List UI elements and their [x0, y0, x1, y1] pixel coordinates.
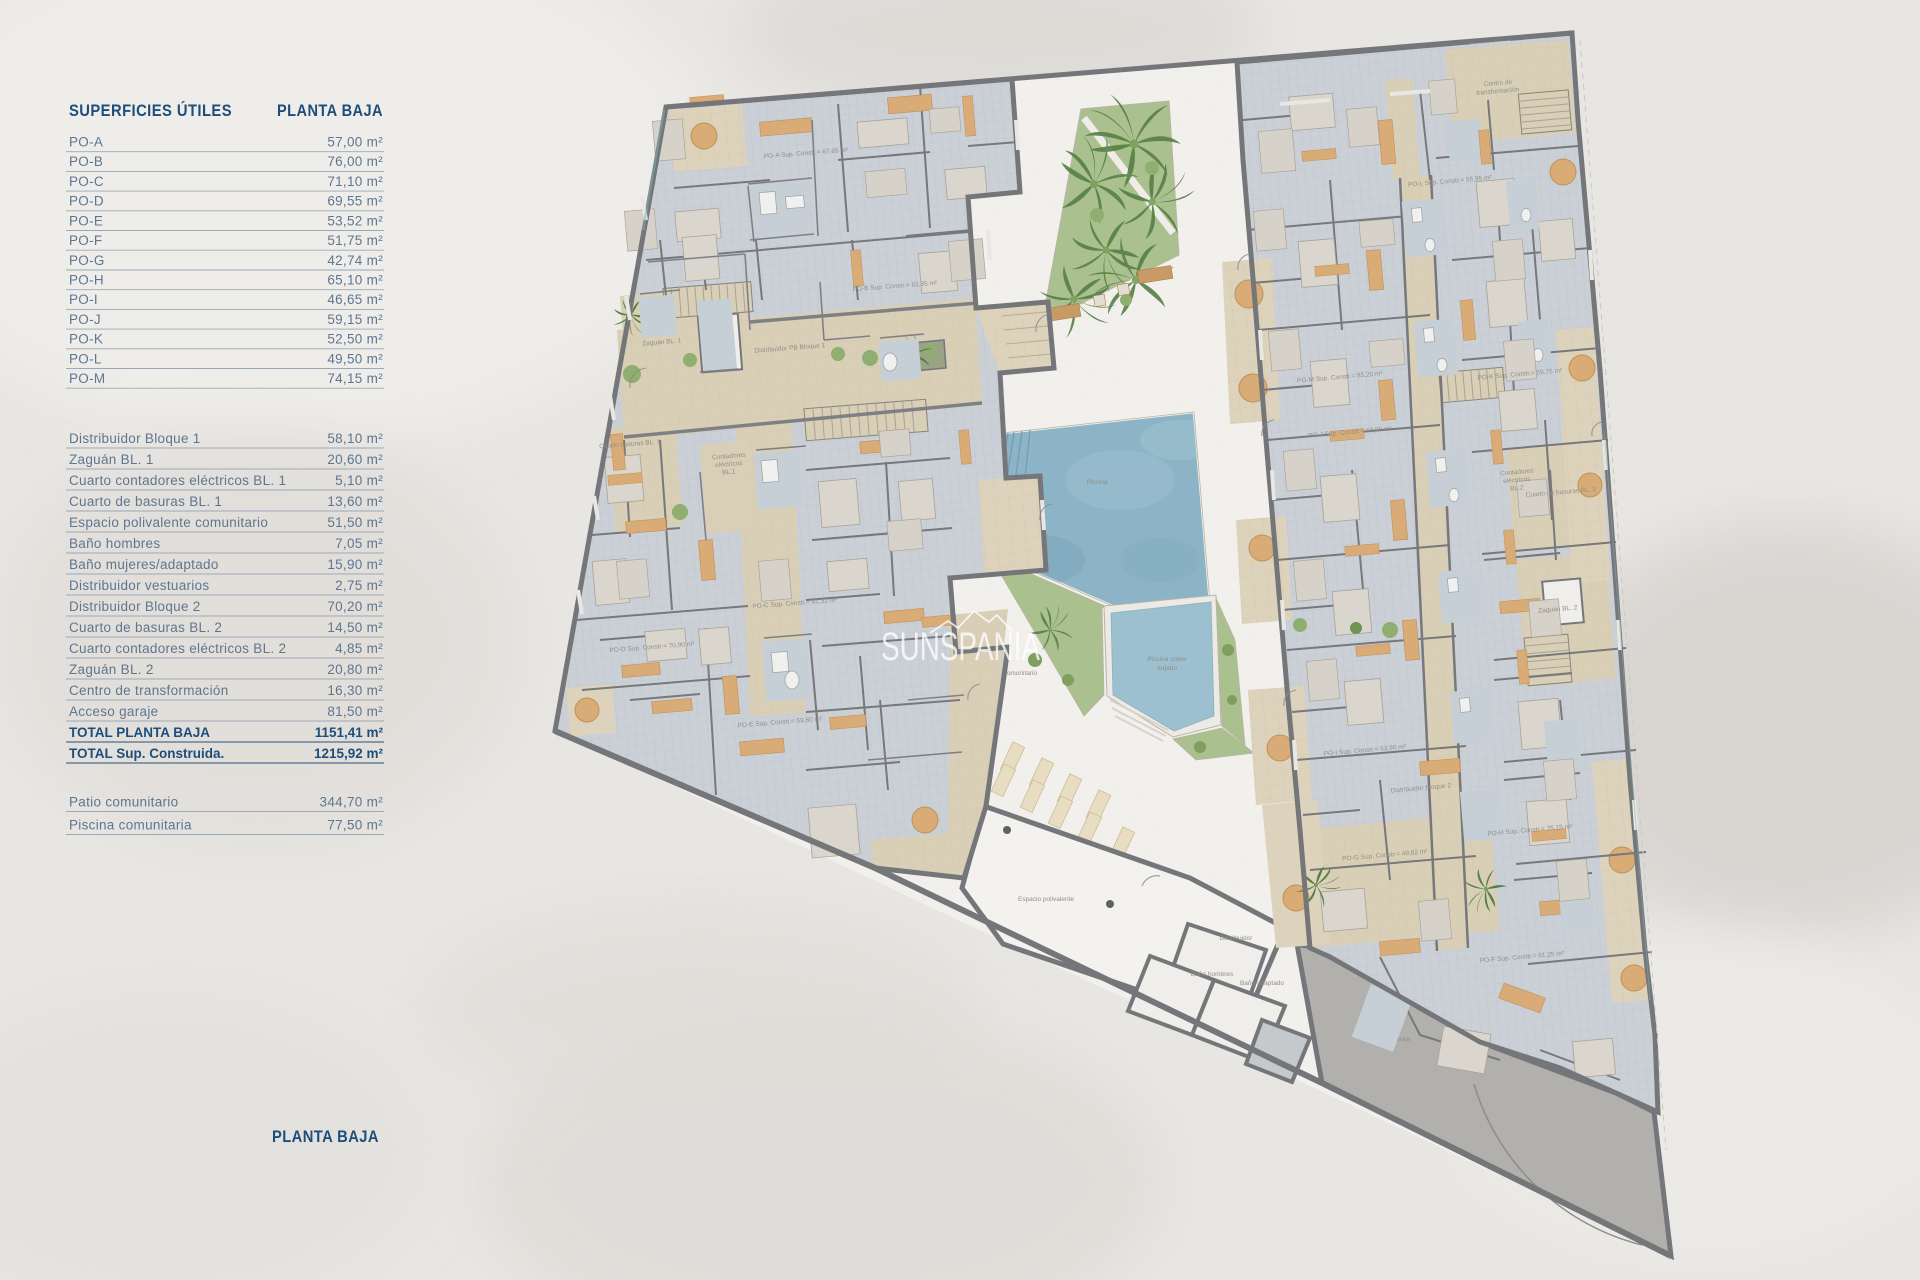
svg-text:Cuarto de basuras BL. 2: Cuarto de basuras BL. 2 [69, 620, 222, 635]
svg-text:Distribuidor: Distribuidor [1220, 935, 1254, 942]
svg-text:2,75 m²: 2,75 m² [335, 578, 383, 593]
svg-text:Cuarto contadores eléctricos B: Cuarto contadores eléctricos BL. 2 [69, 641, 286, 656]
svg-text:59,15 m²: 59,15 m² [327, 312, 383, 327]
svg-text:Cuarto contadores eléctricos B: Cuarto contadores eléctricos BL. 1 [69, 473, 286, 488]
svg-text:Baño adaptado: Baño adaptado [1240, 980, 1284, 987]
svg-text:Baño hombres: Baño hombres [1191, 971, 1234, 978]
svg-text:71,10 m²: 71,10 m² [327, 174, 383, 189]
svg-text:16,30 m²: 16,30 m² [327, 683, 383, 698]
svg-text:81,50 m²: 81,50 m² [327, 704, 383, 719]
svg-text:Baño hombres: Baño hombres [69, 536, 160, 551]
svg-text:SUPERFICIES ÚTILES: SUPERFICIES ÚTILES [69, 101, 232, 120]
svg-text:1151,41 m²: 1151,41 m² [315, 725, 384, 740]
svg-text:BL.1: BL.1 [722, 468, 736, 476]
svg-text:65,10 m²: 65,10 m² [327, 273, 383, 288]
svg-text:PO-G: PO-G [69, 253, 105, 268]
svg-text:51,75 m²: 51,75 m² [327, 233, 383, 248]
svg-text:PLANTA BAJA: PLANTA BAJA [272, 1127, 379, 1146]
svg-text:344,70 m²: 344,70 m² [320, 794, 384, 809]
svg-text:77,50 m²: 77,50 m² [327, 817, 383, 832]
svg-text:Cuarto de basuras BL. 1: Cuarto de basuras BL. 1 [69, 494, 222, 509]
svg-text:forjado: forjado [1157, 665, 1177, 672]
svg-text:13,60 m²: 13,60 m² [327, 494, 383, 509]
svg-text:53,52 m²: 53,52 m² [327, 213, 383, 228]
svg-text:14,50 m²: 14,50 m² [327, 620, 383, 635]
svg-text:Piscina comunitaria: Piscina comunitaria [69, 817, 192, 832]
svg-text:69,55 m²: 69,55 m² [327, 194, 383, 209]
svg-text:1215,92 m²: 1215,92 m² [314, 746, 384, 761]
svg-text:PO-K: PO-K [69, 332, 103, 347]
svg-text:PO-J: PO-J [69, 312, 101, 327]
svg-text:Distribuidor vestuarios: Distribuidor vestuarios [69, 578, 209, 593]
svg-text:PO-D: PO-D [69, 194, 104, 209]
svg-text:Zaguán BL. 1: Zaguán BL. 1 [69, 452, 154, 467]
svg-text:57,00 m²: 57,00 m² [327, 135, 383, 150]
svg-text:PO-C: PO-C [69, 174, 104, 189]
svg-text:49,50 m²: 49,50 m² [327, 351, 383, 366]
svg-text:Distribuidor Bloque 1: Distribuidor Bloque 1 [69, 431, 201, 446]
svg-text:PO-F: PO-F [69, 233, 102, 248]
svg-text:74,15 m²: 74,15 m² [327, 371, 383, 386]
svg-text:42,74 m²: 42,74 m² [327, 253, 383, 268]
svg-text:46,65 m²: 46,65 m² [327, 292, 383, 307]
svg-text:5,10 m²: 5,10 m² [335, 473, 383, 488]
svg-text:Zaguán BL. 2: Zaguán BL. 2 [69, 662, 154, 677]
svg-text:Distribuidor Bloque 2: Distribuidor Bloque 2 [69, 599, 201, 614]
svg-text:Patio comunitario: Patio comunitario [69, 794, 178, 809]
svg-text:PO-B: PO-B [69, 154, 103, 169]
svg-text:BL.2: BL.2 [1510, 484, 1524, 492]
svg-text:20,80 m²: 20,80 m² [327, 662, 383, 677]
svg-text:Acceso garaje: Acceso garaje [69, 704, 158, 719]
svg-text:7,05 m²: 7,05 m² [335, 536, 383, 551]
svg-text:76,00 m²: 76,00 m² [327, 154, 383, 169]
svg-text:PLANTA BAJA: PLANTA BAJA [277, 101, 383, 120]
svg-text:Baño mujeres/adaptado: Baño mujeres/adaptado [69, 557, 219, 572]
svg-text:52,50 m²: 52,50 m² [327, 332, 383, 347]
svg-text:Centro de transformación: Centro de transformación [69, 683, 229, 698]
svg-text:PO-L: PO-L [69, 351, 102, 366]
svg-text:TOTAL PLANTA BAJA: TOTAL PLANTA BAJA [69, 725, 210, 740]
svg-text:PO-I: PO-I [69, 292, 98, 307]
svg-text:Piscina sobre: Piscina sobre [1147, 656, 1186, 663]
svg-text:PO-H: PO-H [69, 273, 104, 288]
svg-text:Espacio polivalente: Espacio polivalente [1018, 896, 1074, 903]
svg-text:20,60 m²: 20,60 m² [327, 452, 383, 467]
svg-text:58,10 m²: 58,10 m² [327, 431, 383, 446]
svg-text:PO-E: PO-E [69, 213, 103, 228]
svg-text:TOTAL Sup. Construida.: TOTAL Sup. Construida. [69, 746, 224, 761]
svg-text:15,90 m²: 15,90 m² [327, 557, 383, 572]
svg-text:PO-M: PO-M [69, 371, 105, 386]
svg-text:Espacio polivalente comunitari: Espacio polivalente comunitario [69, 515, 268, 530]
svg-text:PO-A: PO-A [69, 135, 103, 150]
svg-text:Piscina: Piscina [1087, 479, 1108, 486]
svg-text:51,50 m²: 51,50 m² [327, 515, 383, 530]
svg-text:SUNSPANIA: SUNSPANIA [881, 625, 1040, 669]
svg-text:4,85 m²: 4,85 m² [335, 641, 383, 656]
svg-text:70,20 m²: 70,20 m² [327, 599, 383, 614]
